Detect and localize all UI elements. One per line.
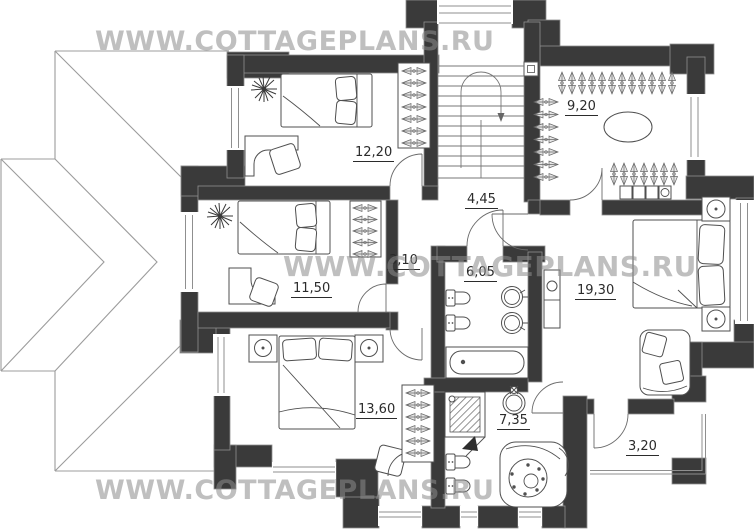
hanger-icon bbox=[589, 72, 596, 94]
hanger-icon bbox=[649, 72, 656, 94]
watermark-top: WWW.COTTAGEPLANS.RU bbox=[95, 26, 494, 57]
sofa-icon bbox=[640, 330, 690, 395]
jacuzzi-icon bbox=[500, 442, 568, 507]
hanger-icon bbox=[579, 72, 586, 94]
bedroom-1-furniture bbox=[245, 63, 430, 176]
ottoman-icon bbox=[604, 112, 652, 142]
toilet-icon bbox=[446, 290, 470, 306]
room-label-bedroom-2: 11,50 bbox=[291, 282, 332, 298]
hanger-icon bbox=[639, 72, 646, 94]
bathroom-fixtures bbox=[446, 287, 528, 379]
stair-direction-arrow bbox=[498, 113, 505, 122]
watermark-middle: WWW.COTTAGEPLANS.RU bbox=[283, 250, 697, 283]
floor-plan: 12,20 11,50 13,60 4,45 3,10 6,05 9,20 19… bbox=[0, 0, 754, 531]
dresser-icon bbox=[620, 186, 671, 199]
room-label-bedroom-1: 12,20 bbox=[353, 146, 394, 162]
hanger-icon bbox=[641, 163, 648, 185]
room-label-master-bedroom: 19,30 bbox=[575, 284, 616, 300]
bidet-icon bbox=[446, 315, 470, 331]
wardrobe-furniture bbox=[534, 72, 678, 199]
hanger-icon bbox=[599, 72, 606, 94]
room-label-balcony: 3,20 bbox=[626, 440, 659, 456]
plant-icon bbox=[251, 76, 277, 102]
toilet-icon bbox=[446, 454, 470, 470]
shower-door-arrow bbox=[462, 436, 478, 451]
hanger-icon bbox=[619, 72, 626, 94]
room-label-hall-stairs: 4,45 bbox=[465, 193, 498, 209]
watermark-bottom: WWW.COTTAGEPLANS.RU bbox=[95, 475, 494, 506]
hanger-icon bbox=[629, 72, 636, 94]
hanger-icon bbox=[609, 72, 616, 94]
hanger-icon bbox=[569, 72, 576, 94]
room-label-wardrobe: 9,20 bbox=[565, 100, 598, 116]
plant-icon bbox=[207, 203, 233, 229]
hanger-icon bbox=[559, 72, 566, 94]
hanger-icon bbox=[621, 163, 628, 185]
staircase bbox=[438, 66, 524, 178]
hanger-icon bbox=[611, 163, 618, 185]
room-label-master-bathroom: 7,35 bbox=[497, 414, 530, 430]
hanger-icon bbox=[661, 163, 668, 185]
hanger-icon bbox=[669, 72, 676, 94]
room-label-bedroom-3: 13,60 bbox=[356, 403, 397, 419]
hanger-icon bbox=[671, 163, 678, 185]
hanger-icon bbox=[651, 163, 658, 185]
hanger-icon bbox=[659, 72, 666, 94]
hanger-icon bbox=[631, 163, 638, 185]
